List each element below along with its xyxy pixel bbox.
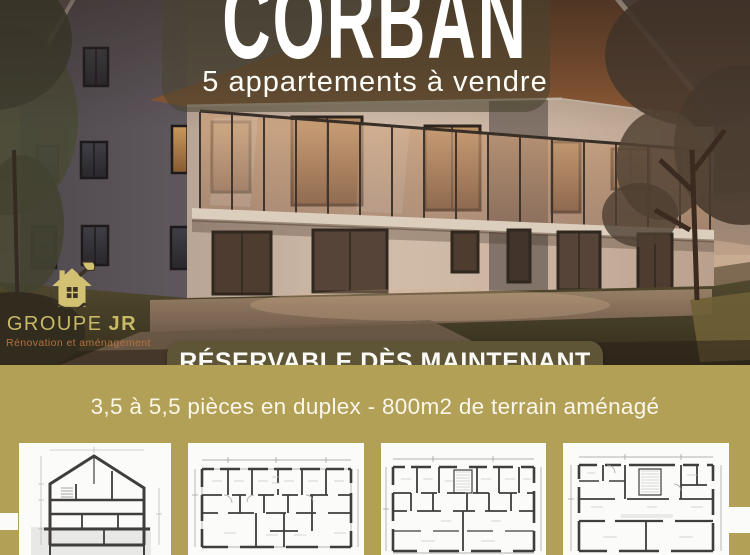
edge-card-gap-right	[729, 507, 750, 533]
details-line: 3,5 à 5,5 pièces en duplex - 800m2 de te…	[0, 394, 750, 420]
groupe-jr-logo: GROUPEJR Rénovation et aménagement	[6, 261, 138, 349]
middle-floor-plan-drawing	[381, 443, 546, 555]
floor-plan-card-3	[381, 443, 546, 555]
project-subtitle: 5 appartements à vendre	[0, 66, 750, 99]
upper-floor-plan-drawing	[188, 443, 364, 555]
floor-plan-card-2	[188, 443, 364, 555]
house-hammer-icon	[47, 261, 97, 311]
logo-tagline: Rénovation et aménagement	[6, 337, 138, 349]
building-cross-section-drawing	[19, 443, 171, 555]
floor-plan-card-4	[563, 443, 729, 555]
edge-card-gap-left	[0, 513, 18, 530]
project-title: CORBAN	[150, 0, 600, 76]
property-poster: CORBAN 5 appartements à vendre GROUPEJR …	[0, 0, 750, 555]
logo-name: GROUPEJR	[6, 313, 138, 336]
ground-floor-plan-drawing	[563, 443, 729, 555]
floor-plan-card-1	[19, 443, 171, 555]
